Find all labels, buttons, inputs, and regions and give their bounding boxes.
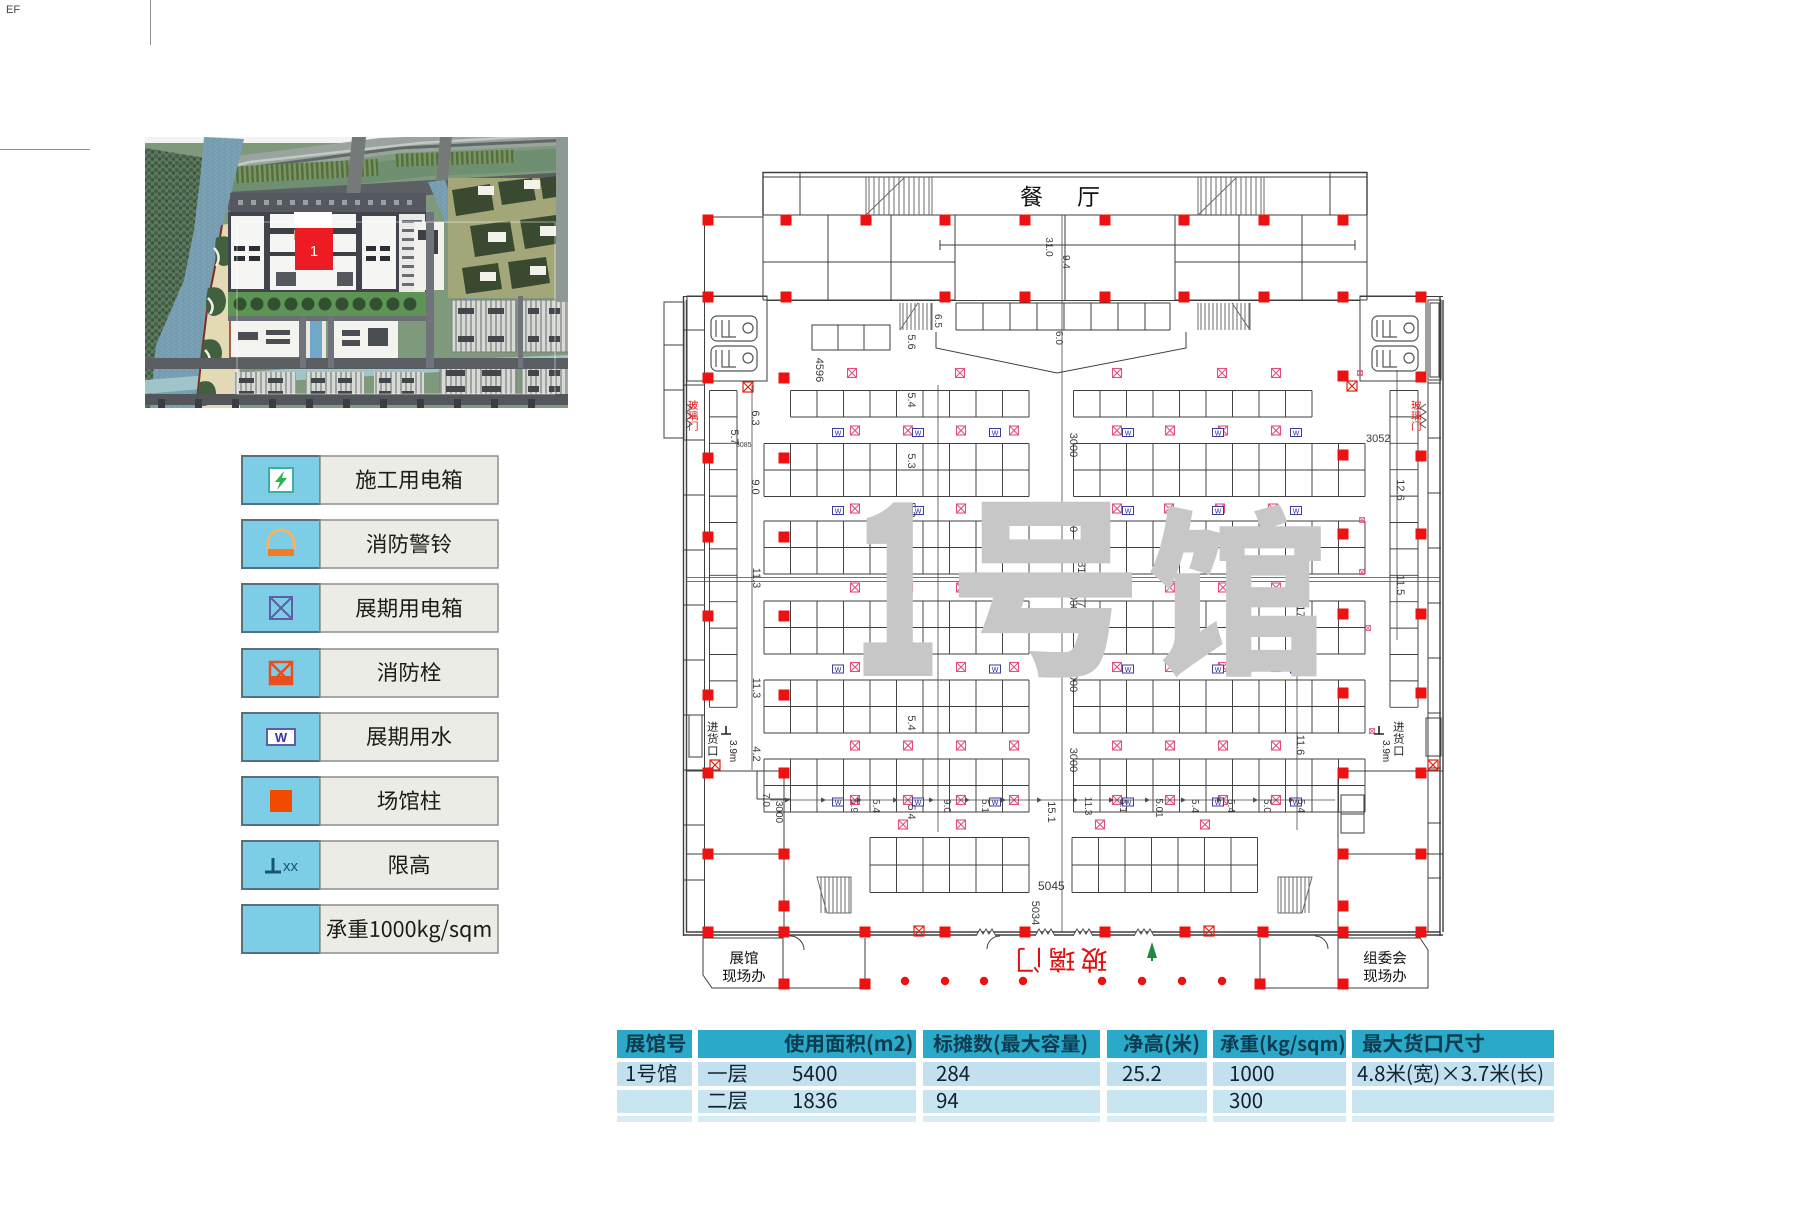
svg-text:3085: 3085 [736, 442, 752, 449]
svg-text:31.0: 31.0 [1043, 237, 1054, 257]
svg-text:W: W [835, 667, 842, 674]
svg-text:xx: xx [283, 858, 299, 875]
svg-text:11.5: 11.5 [1394, 575, 1406, 596]
svg-text:W: W [1125, 431, 1132, 438]
svg-text:11.3: 11.3 [750, 568, 762, 589]
svg-text:1: 1 [310, 243, 318, 260]
svg-text:5.9: 5.9 [848, 799, 859, 813]
svg-text:6.0: 6.0 [1053, 331, 1064, 345]
svg-text:9.0: 9.0 [941, 799, 952, 813]
svg-text:9.4: 9.4 [1060, 255, 1071, 269]
svg-text:3000: 3000 [773, 801, 784, 824]
svg-text:7.0: 7.0 [760, 793, 771, 807]
svg-text:W: W [1125, 509, 1132, 516]
svg-text:5.1: 5.1 [1117, 799, 1128, 813]
svg-text:5.4: 5.4 [905, 392, 917, 407]
svg-text:5.01: 5.01 [1153, 798, 1164, 818]
svg-text:5.4: 5.4 [870, 799, 881, 813]
svg-text:6.3: 6.3 [749, 410, 761, 425]
svg-text:EF: EF [6, 4, 20, 16]
svg-text:W: W [275, 730, 288, 745]
svg-text:W: W [1215, 509, 1222, 516]
svg-text:5.4: 5.4 [1225, 799, 1236, 813]
svg-text:3.9m: 3.9m [1380, 740, 1391, 762]
svg-text:11.3: 11.3 [750, 678, 762, 699]
svg-text:W: W [992, 667, 999, 674]
svg-text:W: W [992, 800, 999, 807]
svg-text:W: W [1293, 431, 1300, 438]
svg-text:W: W [992, 431, 999, 438]
svg-text:4.2: 4.2 [750, 746, 762, 761]
svg-text:5.3: 5.3 [905, 453, 917, 468]
svg-text:W: W [1215, 667, 1222, 674]
svg-text:W: W [1125, 667, 1132, 674]
svg-text:3052: 3052 [1366, 433, 1390, 445]
svg-text:15.1: 15.1 [1045, 801, 1057, 822]
svg-text:W: W [835, 509, 842, 516]
svg-text:11.6: 11.6 [1294, 735, 1306, 756]
svg-text:3000: 3000 [1067, 748, 1079, 772]
svg-text:5.4: 5.4 [905, 715, 917, 730]
svg-text:W: W [835, 800, 842, 807]
svg-text:W: W [1293, 509, 1300, 516]
svg-text:11.3: 11.3 [1082, 797, 1093, 816]
svg-text:3.9m: 3.9m [727, 740, 738, 762]
svg-text:5.0: 5.0 [1261, 799, 1272, 813]
svg-text:5034: 5034 [1029, 901, 1041, 925]
svg-text:W: W [915, 431, 922, 438]
svg-text:5.4: 5.4 [905, 804, 917, 819]
svg-text:5.4: 5.4 [1189, 799, 1200, 813]
svg-text:W: W [835, 431, 842, 438]
svg-text:5.6: 5.6 [905, 334, 917, 349]
svg-text:9.0: 9.0 [749, 479, 761, 494]
svg-text:3000: 3000 [1067, 433, 1079, 457]
svg-text:5.4: 5.4 [1295, 799, 1306, 813]
svg-text:5.1: 5.1 [979, 799, 990, 813]
svg-text:6.5: 6.5 [932, 314, 943, 328]
svg-text:W: W [1215, 431, 1222, 438]
svg-text:4596: 4596 [813, 358, 825, 382]
svg-text:12.6: 12.6 [1394, 479, 1406, 500]
svg-text:5045: 5045 [1038, 879, 1065, 893]
